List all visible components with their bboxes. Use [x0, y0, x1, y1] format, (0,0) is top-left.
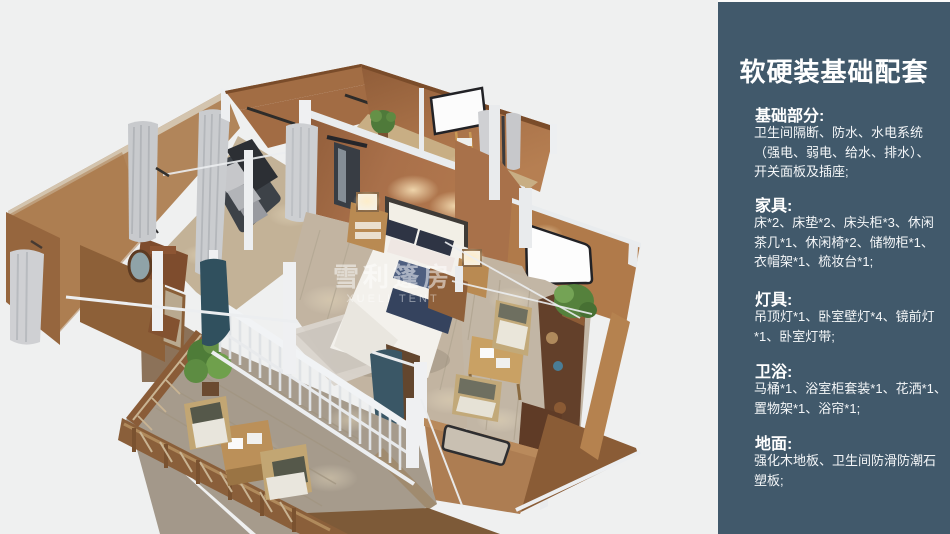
svg-text:XUELI TENT: XUELI TENT	[346, 293, 439, 305]
svg-text:雪利篷房: 雪利篷房	[333, 262, 453, 292]
